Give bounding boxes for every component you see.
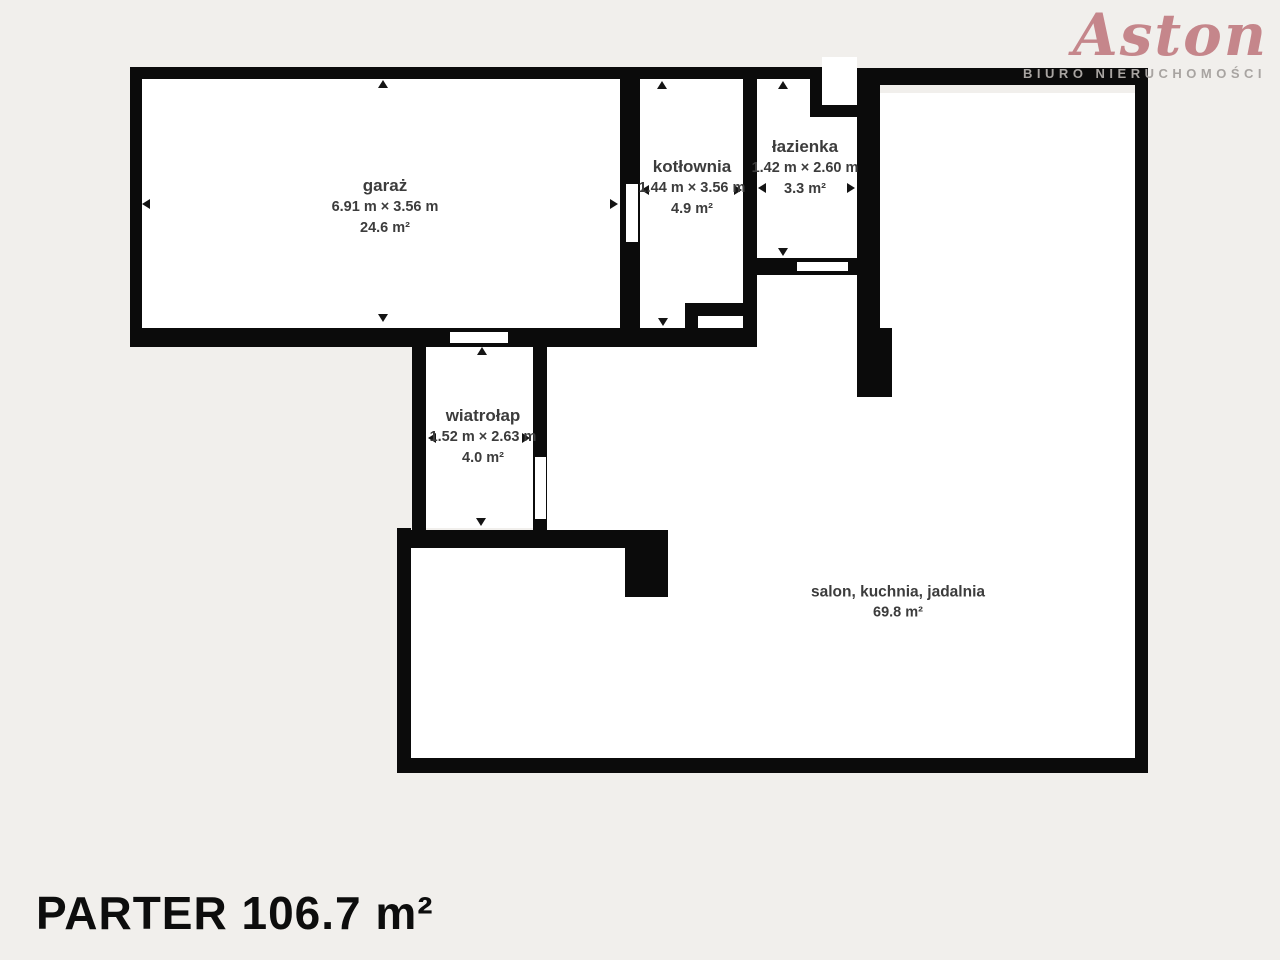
brand-name: Aston: [1023, 6, 1268, 64]
dimension-arrow-up-icon: [778, 81, 788, 89]
dimension-arrow-down-icon: [658, 318, 668, 326]
dimension-arrow-left-icon: [142, 199, 150, 209]
room-area: 4.0 m²: [430, 448, 537, 469]
wall-segment-pier-right: [857, 328, 892, 397]
room-dimensions: 1.52 m × 2.63 m: [430, 427, 537, 448]
brand-subtitle: BIURO NIERUCHOMOŚCI: [1023, 66, 1266, 81]
room-dimensions: 1.42 m × 2.60 m: [752, 158, 859, 179]
room-label-garage: garaż 6.91 m × 3.56 m 24.6 m²: [332, 175, 439, 239]
room-dimensions: 6.91 m × 3.56 m: [332, 197, 439, 218]
wall-segment-vestibule-left: [412, 328, 426, 548]
wall-segment-living-left: [397, 528, 411, 773]
dimension-arrow-up-icon: [657, 81, 667, 89]
wall-segment-bathroom-right: [857, 68, 880, 328]
room-area: 4.9 m²: [639, 199, 746, 220]
door-opening-garage-boiler: [626, 184, 638, 242]
room-label-living-room: salon, kuchnia, jadalnia 69.8 m²: [811, 582, 985, 623]
room-name: kotłownia: [639, 156, 746, 178]
dimension-arrow-up-icon: [378, 80, 388, 88]
brand-logo: Aston BIURO NIERUCHOMOŚCI: [1023, 6, 1268, 81]
room-name: wiatrołap: [430, 405, 537, 427]
wall-segment-pier-middle: [625, 548, 668, 597]
dimension-arrow-down-icon: [378, 314, 388, 322]
floor-plan: garaż 6.91 m × 3.56 m 24.6 m² kotłownia …: [0, 0, 1280, 960]
floor-area-living-room-left: [411, 548, 547, 758]
dimension-arrow-right-icon: [610, 199, 618, 209]
wall-segment-boiler-door-jamb: [685, 313, 698, 330]
room-label-bathroom: łazienka 1.42 m × 2.60 m 3.3 m²: [752, 136, 859, 200]
door-opening-vestibule-top: [450, 332, 508, 343]
room-area: 24.6 m²: [332, 218, 439, 239]
door-opening-bathroom: [797, 262, 848, 271]
door-opening-vestibule-living: [535, 457, 546, 519]
room-label-vestibule: wiatrołap 1.52 m × 2.63 m 4.0 m²: [430, 405, 537, 469]
page-title: PARTER 106.7 m²: [36, 886, 434, 940]
floor-area-entry-recess: [822, 57, 857, 105]
room-name: salon, kuchnia, jadalnia: [811, 582, 985, 602]
dimension-arrow-down-icon: [476, 518, 486, 526]
room-area: 3.3 m²: [752, 179, 859, 200]
wall-segment-garage-bottom: [130, 328, 757, 347]
floor-area-living-room-top: [880, 93, 1137, 347]
room-label-boiler-room: kotłownia 1.44 m × 3.56 m 4.9 m²: [639, 156, 746, 220]
room-area: 69.8 m²: [811, 603, 985, 624]
room-dimensions: 1.44 m × 3.56 m: [639, 178, 746, 199]
room-name: garaż: [332, 175, 439, 197]
room-name: łazienka: [752, 136, 859, 158]
floor-area-corridor: [757, 275, 857, 347]
dimension-arrow-down-icon: [778, 248, 788, 256]
wall-segment-right: [1135, 68, 1148, 773]
door-opening-boiler: [700, 316, 742, 328]
dimension-arrow-up-icon: [477, 347, 487, 355]
wall-segment-top: [130, 67, 822, 79]
wall-segment-left: [130, 67, 142, 347]
wall-segment-bottom: [397, 758, 1148, 773]
